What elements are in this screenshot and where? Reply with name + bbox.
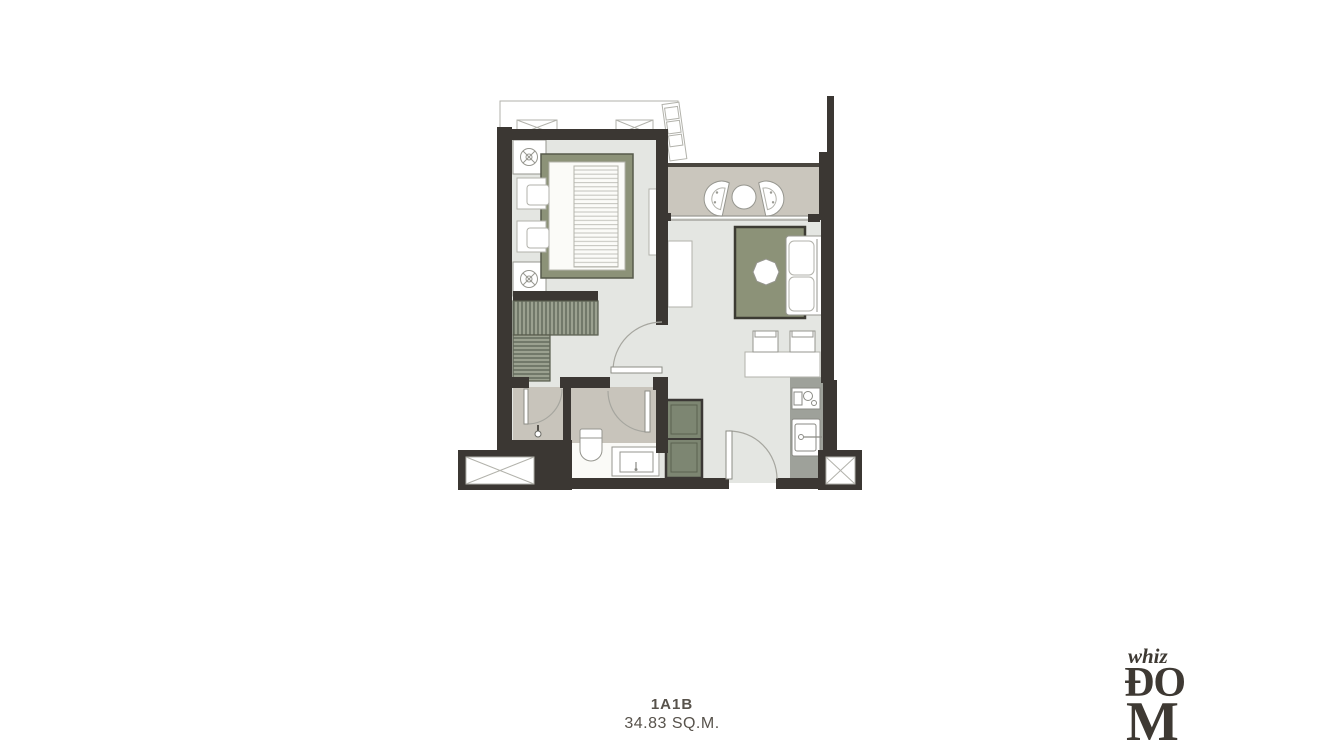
ottoman <box>753 259 779 285</box>
logo-word-m: M <box>1126 694 1214 750</box>
tv-console <box>668 241 692 307</box>
sofa <box>786 236 824 315</box>
pillow <box>517 178 549 209</box>
pillow <box>517 221 549 252</box>
toilet <box>580 429 602 461</box>
floor-plan <box>0 0 1342 754</box>
stool <box>753 331 778 352</box>
kitchen-sink <box>792 419 822 456</box>
shaft <box>466 457 534 484</box>
shaft <box>826 457 855 484</box>
unit-area: 34.83 SQ.M. <box>492 715 852 733</box>
dining-counter <box>745 352 820 377</box>
whizdom-logo: whiz ĐO M <box>1124 646 1214 750</box>
balcony-rail <box>657 163 820 167</box>
stool <box>790 331 815 352</box>
vanity-sink <box>612 447 659 476</box>
cooktop <box>792 388 820 409</box>
kitchen <box>792 388 822 456</box>
balcony-table <box>732 185 756 209</box>
unit-caption: 1A1B 34.83 SQ.M. <box>492 696 852 733</box>
unit-name: 1A1B <box>492 696 852 713</box>
entrance-cabinet <box>666 400 702 478</box>
